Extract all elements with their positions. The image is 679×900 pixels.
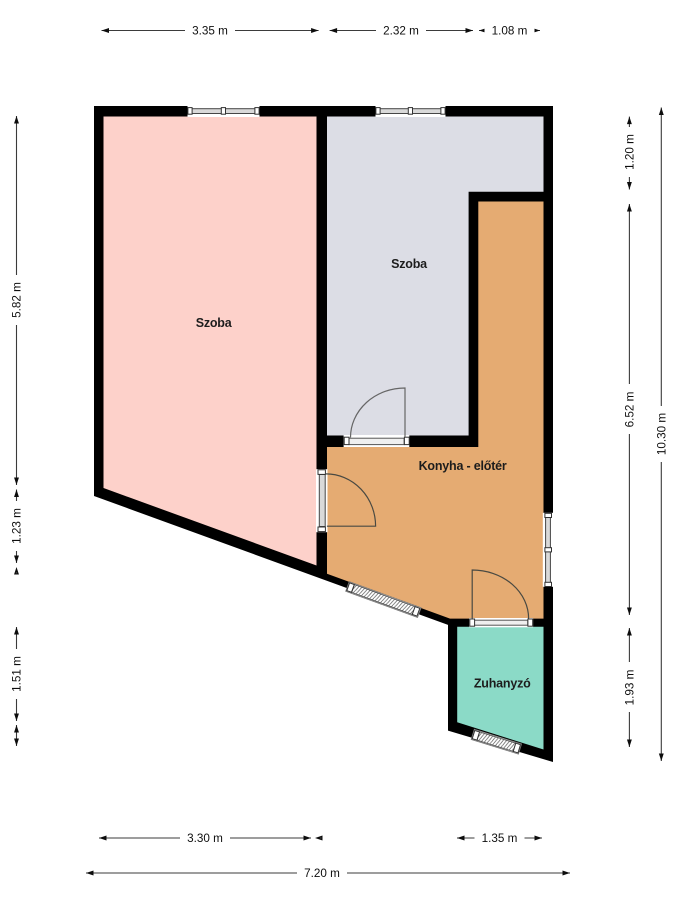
- svg-text:1.08 m: 1.08 m: [492, 25, 528, 38]
- svg-text:1.23 m: 1.23 m: [11, 508, 24, 544]
- svg-text:5.82 m: 5.82 m: [11, 282, 24, 318]
- svg-text:3.30 m: 3.30 m: [187, 832, 223, 845]
- svg-text:Szoba: Szoba: [391, 257, 428, 271]
- svg-text:Szoba: Szoba: [196, 316, 233, 330]
- svg-text:7.20 m: 7.20 m: [304, 867, 340, 880]
- svg-text:1.35 m: 1.35 m: [482, 832, 518, 845]
- svg-text:Zuhanyzó: Zuhanyzó: [474, 676, 531, 690]
- svg-text:2.32 m: 2.32 m: [383, 25, 419, 38]
- svg-text:1.93 m: 1.93 m: [623, 670, 636, 706]
- svg-text:3.35 m: 3.35 m: [192, 25, 228, 38]
- svg-text:6.52 m: 6.52 m: [623, 392, 636, 428]
- svg-text:1.51 m: 1.51 m: [11, 656, 24, 692]
- svg-text:Konyha - előtér: Konyha - előtér: [419, 459, 507, 473]
- svg-text:1.20 m: 1.20 m: [623, 134, 636, 170]
- svg-text:10.30 m: 10.30 m: [655, 413, 668, 455]
